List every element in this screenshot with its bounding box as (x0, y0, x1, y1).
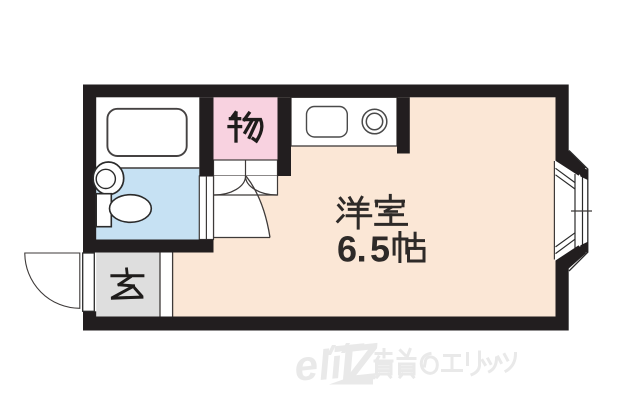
svg-text:6: 6 (337, 229, 357, 270)
svg-text:.: . (357, 229, 367, 270)
svg-text:5: 5 (370, 229, 390, 270)
